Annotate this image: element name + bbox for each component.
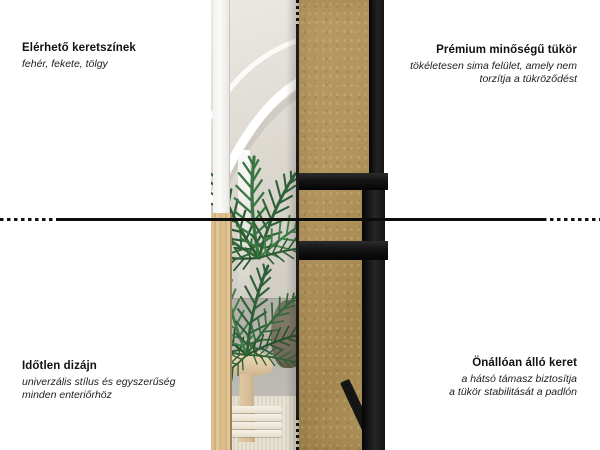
horizontal-dotted-guide-left [0, 218, 57, 221]
white-frame-sample-strip [213, 0, 230, 213]
callout-timeless-design: Időtlen dizájn univerzális stílus és egy… [22, 360, 176, 402]
black-frame-crossbar-lower [299, 241, 388, 260]
vertical-dotted-guide-top [296, 0, 299, 27]
callout-subtitle: univerzális stílus és egyszerűség minden… [22, 376, 176, 402]
black-frame-vertical-bar [369, 0, 384, 176]
front-back-fold-edge [296, 25, 299, 419]
callout-title: Időtlen dizájn [22, 360, 176, 372]
callout-subtitle: tökéletesen sima felület, amely nem torz… [410, 60, 577, 86]
mirror-front-reflection [211, 0, 299, 450]
callout-frame-colors: Elérhető keretszínek fehér, fekete, tölg… [22, 42, 136, 71]
callout-freestanding-frame: Önállóan álló keret a hátsó támasz bizto… [449, 357, 577, 399]
vertical-dotted-guide-bottom [296, 417, 299, 450]
horizontal-divider-line [57, 218, 543, 221]
oak-frame-sample-strip [211, 213, 232, 450]
callout-title: Önállóan álló keret [449, 357, 577, 369]
callout-premium-mirror: Prémium minőségű tükör tökéletesen sima … [410, 44, 577, 86]
callout-subtitle: a hátsó támasz biztosítja a tükör stabil… [449, 373, 577, 399]
callout-title: Prémium minőségű tükör [410, 44, 577, 56]
mirror-feature-infographic: Elérhető keretszínek fehér, fekete, tölg… [0, 0, 600, 450]
black-frame-crossbar-upper [299, 173, 388, 190]
callout-title: Elérhető keretszínek [22, 42, 136, 54]
horizontal-dotted-guide-right [543, 218, 600, 221]
callout-subtitle: fehér, fekete, tölgy [22, 58, 136, 71]
mirror-back-panel [299, 0, 388, 450]
